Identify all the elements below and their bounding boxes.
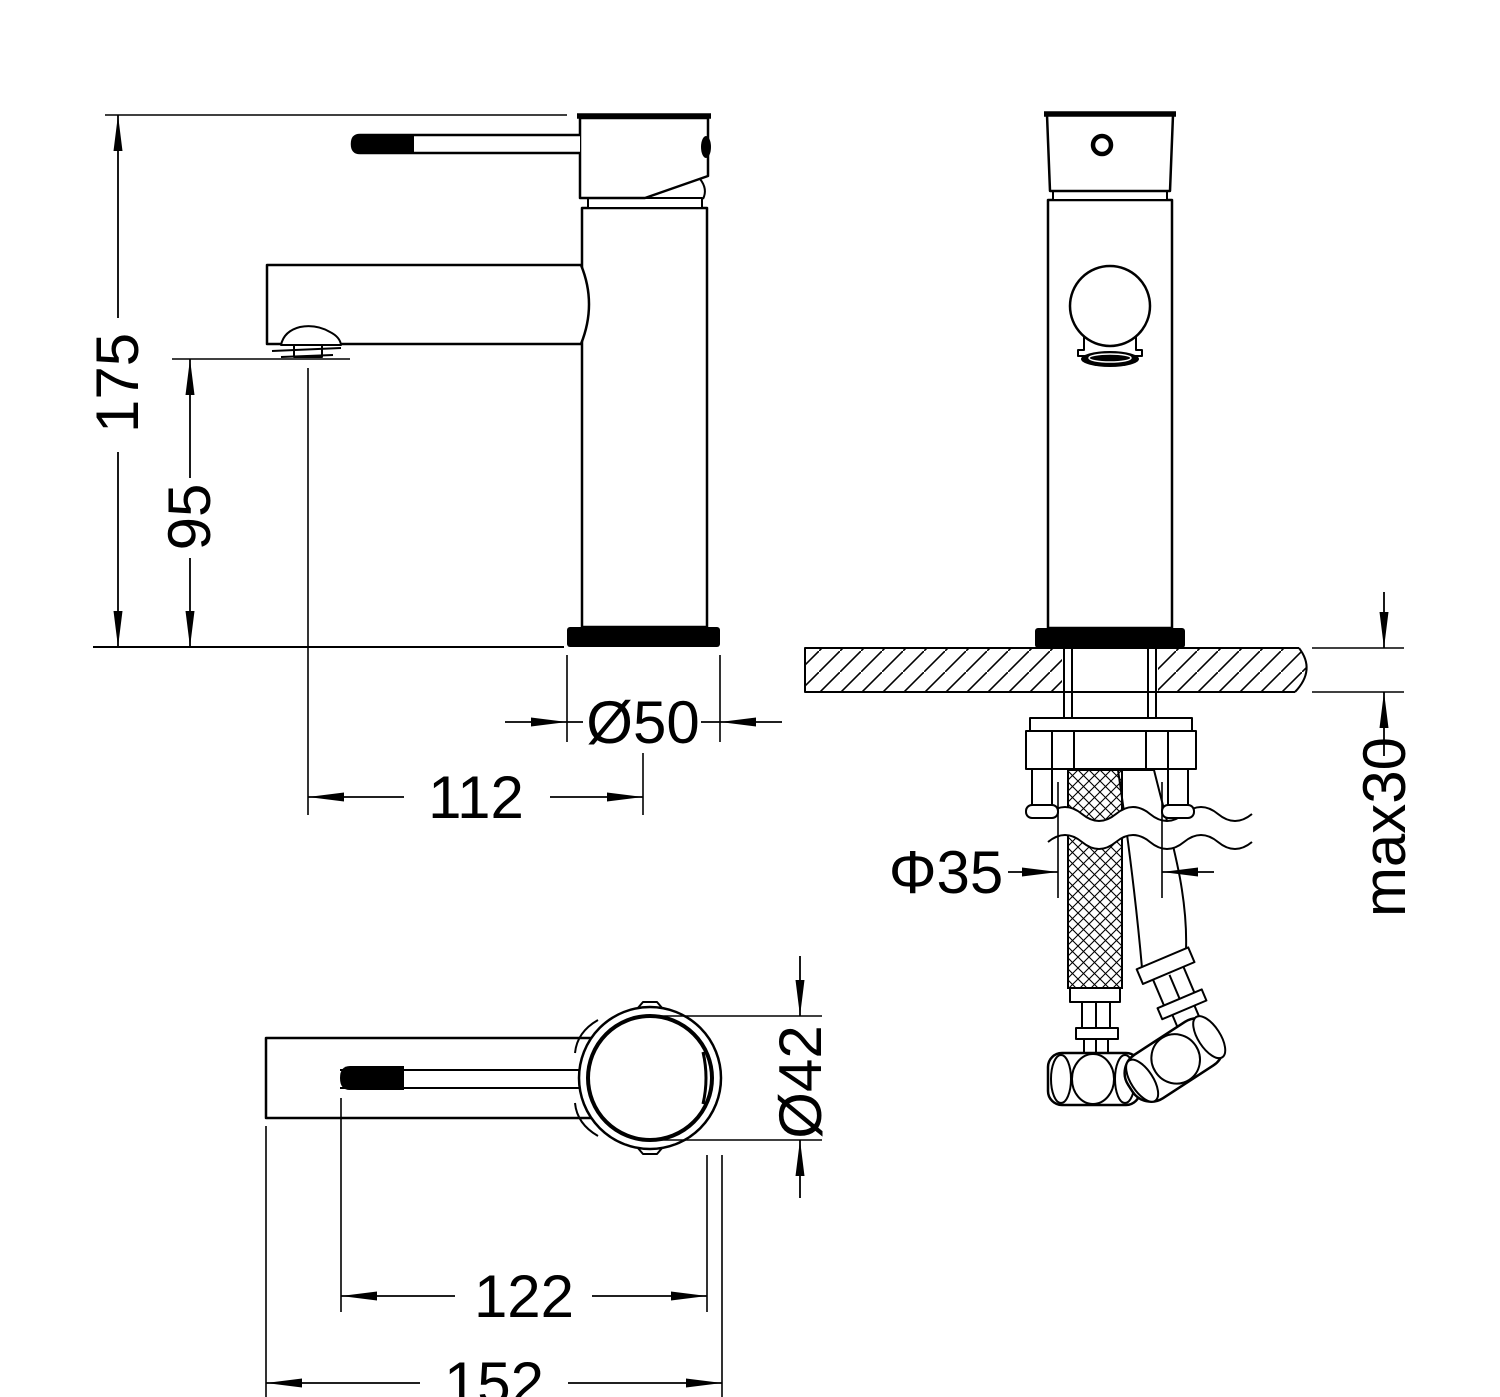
base-gasket-front — [1035, 628, 1185, 648]
lever-top — [266, 1038, 591, 1118]
mount-stud-right — [1168, 769, 1188, 807]
body-front — [1048, 200, 1172, 628]
body-outer-circle — [579, 1007, 721, 1149]
body-side — [582, 208, 707, 627]
technical-drawing-canvas: 175 95 Ø50 112 — [0, 0, 1500, 1397]
handle-cap-front — [1047, 115, 1173, 191]
dim-max-deck-thickness: max30 — [1312, 592, 1418, 917]
dim-total-height: 175 — [84, 115, 567, 647]
dim-label-mount-hole-diameter: Φ35 — [889, 839, 1004, 906]
neck-side — [588, 198, 702, 208]
hose-left-braid — [1068, 770, 1122, 988]
dim-label-handle-reach: 122 — [474, 1263, 574, 1330]
hose-left-fitting — [1048, 988, 1140, 1105]
dim-overall-length: 152 — [266, 1126, 722, 1397]
hose-right-fitting — [1116, 947, 1232, 1110]
dim-base-diameter: Ø50 — [505, 655, 782, 756]
neck-front — [1053, 191, 1167, 200]
lever-grip-side — [352, 135, 414, 153]
mount-stud-left — [1032, 769, 1052, 807]
spout-circle — [1070, 266, 1150, 346]
dim-label-total-height: 175 — [84, 333, 151, 433]
counter-section — [805, 648, 1307, 692]
side-view-faucet — [93, 116, 720, 647]
dim-label-base-diameter: Ø50 — [586, 689, 699, 756]
mounting-shank — [1064, 648, 1156, 718]
handle-head-side — [580, 118, 708, 198]
supply-hoses — [1048, 770, 1252, 1110]
dim-label-max-deck-thickness: max30 — [1351, 737, 1418, 917]
dim-label-spout-reach: 112 — [428, 764, 524, 831]
front-view-faucet — [805, 114, 1307, 1110]
base-gasket-side — [567, 627, 720, 647]
spout-front — [1070, 266, 1150, 367]
dim-label-overall-length: 152 — [444, 1350, 544, 1397]
faucet-dimension-drawing: 175 95 Ø50 112 — [0, 0, 1500, 1397]
dim-spout-height: 95 — [156, 359, 350, 647]
top-view-faucet — [266, 1002, 721, 1154]
dim-label-body-diameter: Ø42 — [767, 1025, 834, 1138]
dim-label-spout-height: 95 — [156, 484, 223, 551]
lever-grip-top — [340, 1066, 404, 1090]
